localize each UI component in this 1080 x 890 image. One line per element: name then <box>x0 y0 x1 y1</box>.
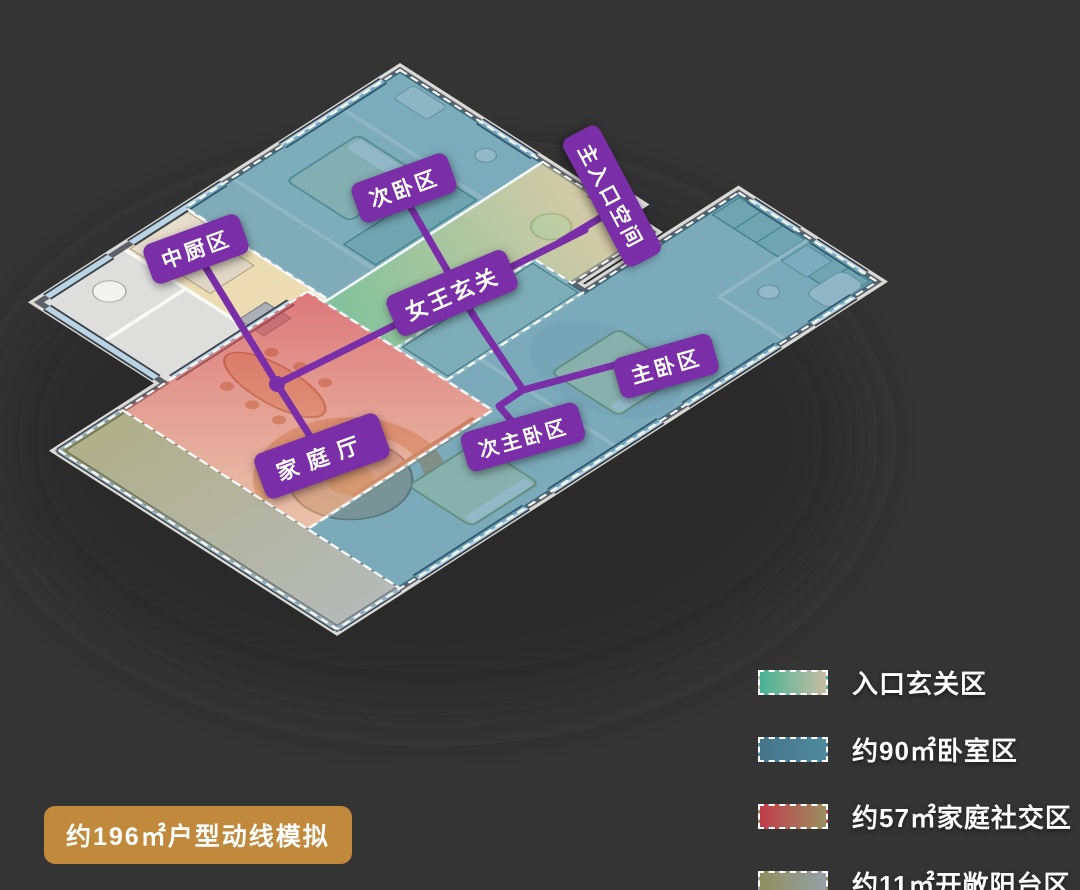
legend-swatch <box>758 670 828 695</box>
title-badge: 约196㎡户型动线模拟 <box>44 806 352 864</box>
legend-item: 约90㎡卧室区 <box>758 731 1072 768</box>
legend-item: 约57㎡家庭社交区 <box>758 798 1072 835</box>
legend-item: 约11㎡开敞阳台区 <box>758 865 1072 890</box>
infographic-canvas: 中厨区 次卧区 主入口空间 女王玄关 主卧区 次主卧区 家庭厅 入口玄关区 约9… <box>0 0 1080 890</box>
flow-node <box>269 376 285 392</box>
legend-label: 约11㎡开敞阳台区 <box>852 865 1071 890</box>
legend-label: 约90㎡卧室区 <box>852 731 1018 768</box>
legend-swatch <box>758 737 828 762</box>
legend-item: 入口玄关区 <box>758 664 1072 701</box>
legend-swatch <box>758 871 828 890</box>
legend-swatch <box>758 804 828 829</box>
legend-label: 入口玄关区 <box>852 664 987 701</box>
legend-label: 约57㎡家庭社交区 <box>852 798 1072 835</box>
legend: 入口玄关区 约90㎡卧室区 约57㎡家庭社交区 约11㎡开敞阳台区 <box>758 664 1072 890</box>
